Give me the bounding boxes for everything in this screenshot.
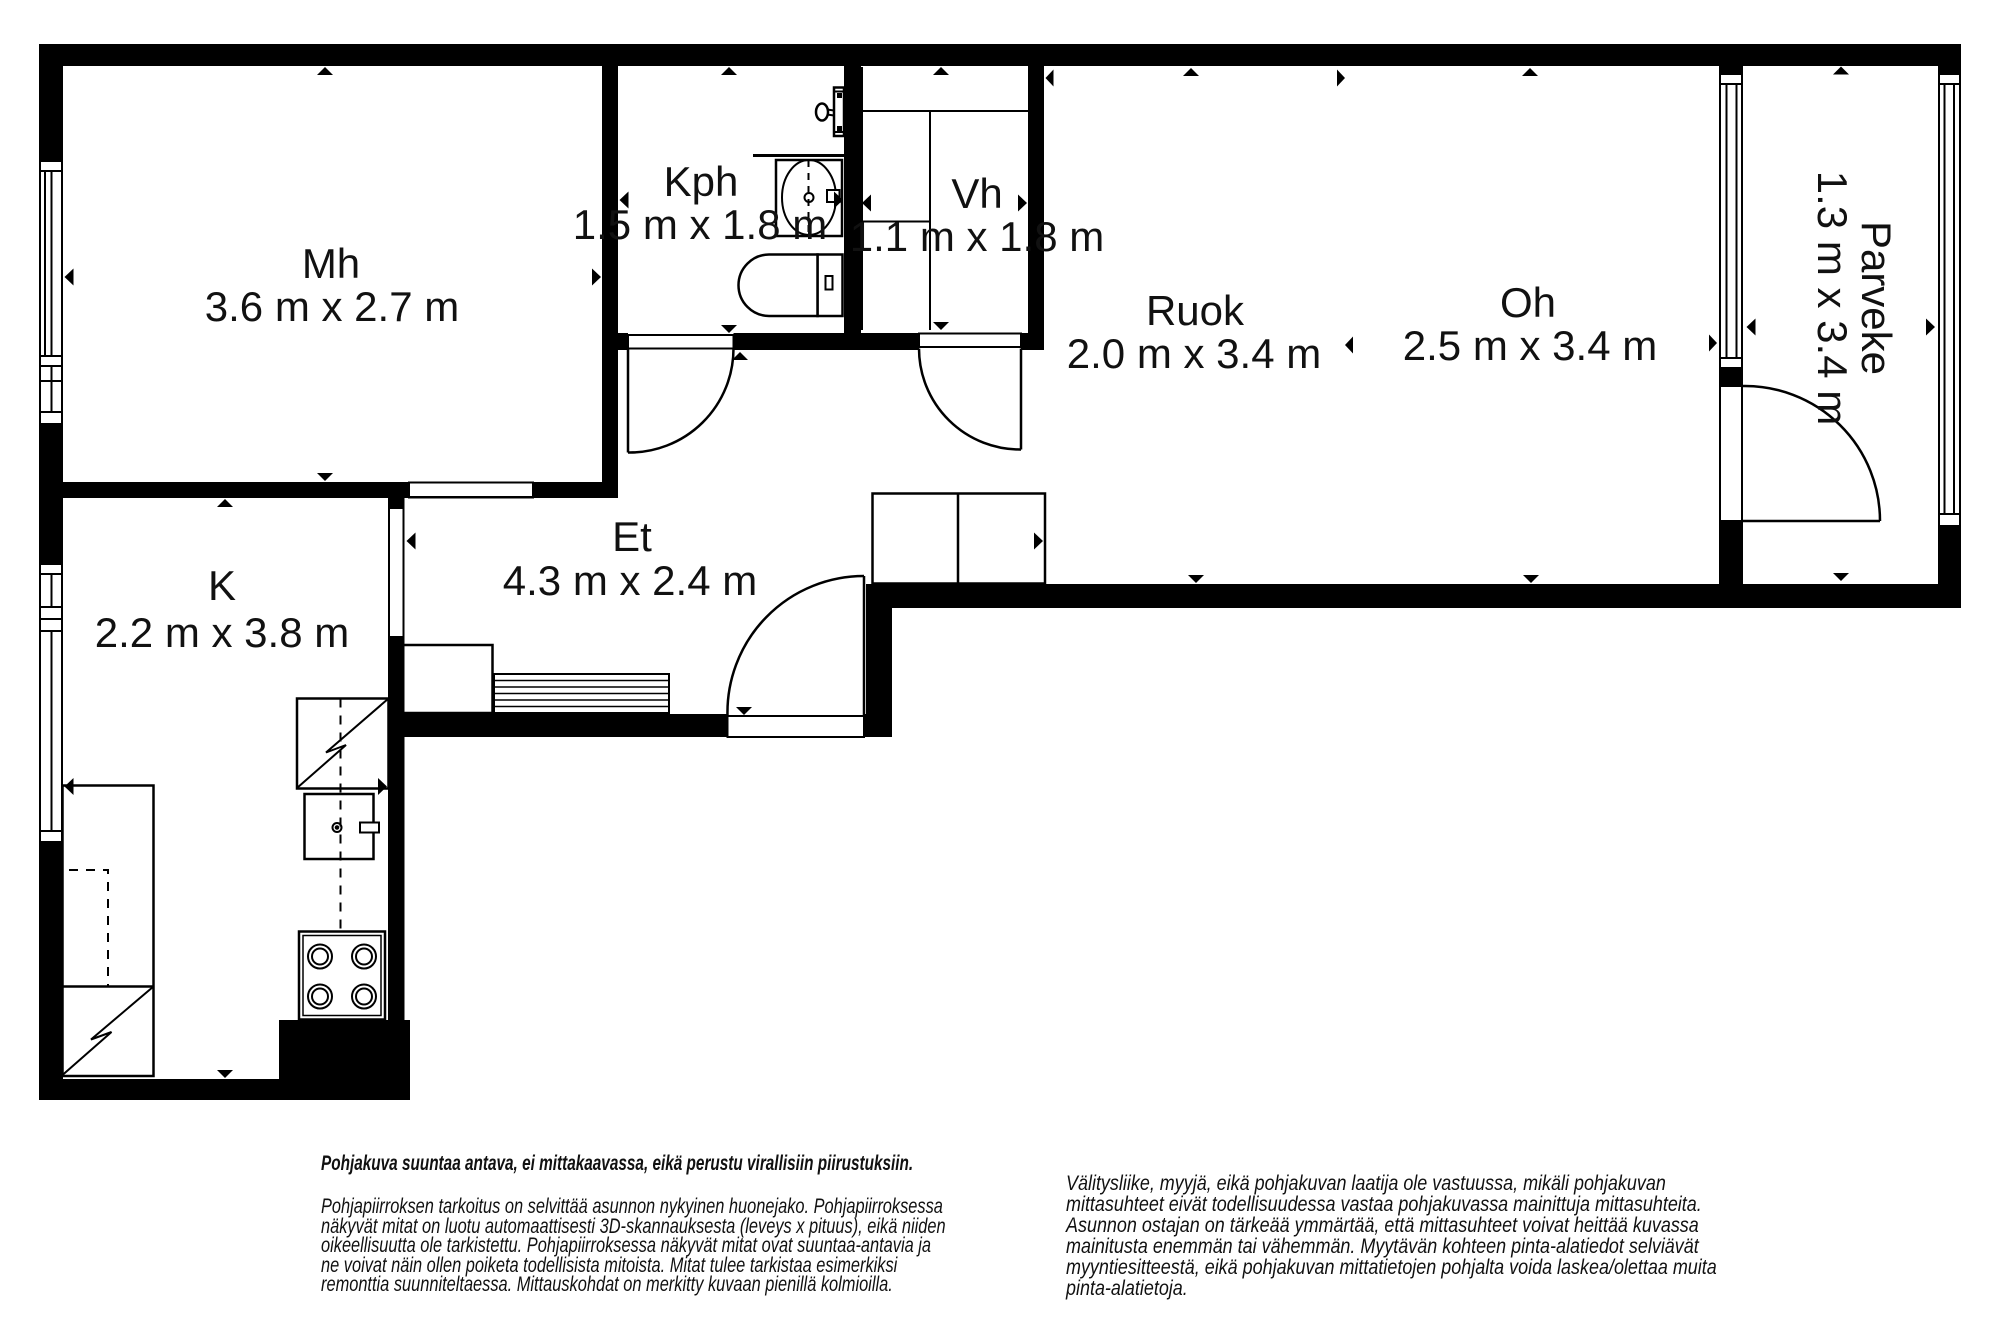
- svg-text:Parveke: Parveke: [1853, 221, 1900, 375]
- svg-text:Mh: Mh: [302, 240, 360, 287]
- svg-text:Ruok: Ruok: [1146, 287, 1245, 334]
- svg-text:2.2 m x 3.8 m: 2.2 m x 3.8 m: [95, 609, 349, 656]
- svg-text:Oh: Oh: [1500, 279, 1556, 326]
- svg-text:3.6 m x 2.7 m: 3.6 m x 2.7 m: [205, 283, 459, 330]
- svg-text:1.5 m x 1.8 m: 1.5 m x 1.8 m: [573, 201, 827, 248]
- svg-text:4.3 m x 2.4 m: 4.3 m x 2.4 m: [503, 557, 757, 604]
- svg-text:2.5 m x 3.4 m: 2.5 m x 3.4 m: [1403, 322, 1657, 369]
- svg-text:Et: Et: [612, 513, 652, 560]
- svg-text:1.3 m x 3.4 m: 1.3 m x 3.4 m: [1809, 171, 1856, 425]
- svg-text:2.0 m x 3.4 m: 2.0 m x 3.4 m: [1067, 330, 1321, 377]
- svg-text:1.1 m x 1.8 m: 1.1 m x 1.8 m: [850, 213, 1104, 260]
- svg-text:K: K: [208, 562, 236, 609]
- svg-text:Kph: Kph: [664, 158, 739, 205]
- svg-text:Vh: Vh: [951, 170, 1002, 217]
